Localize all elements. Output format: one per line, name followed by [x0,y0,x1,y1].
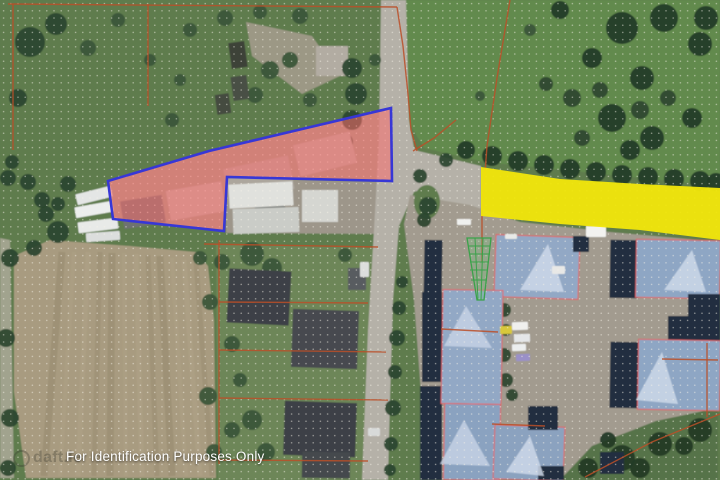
daft-logo-icon [13,450,30,467]
property-map[interactable]: daft.ie For Identification Purposes Only [0,0,720,480]
dot-texture-overlay [0,0,720,480]
disclaimer-text: For Identification Purposes Only [66,449,265,464]
aerial-imagery [0,0,720,480]
